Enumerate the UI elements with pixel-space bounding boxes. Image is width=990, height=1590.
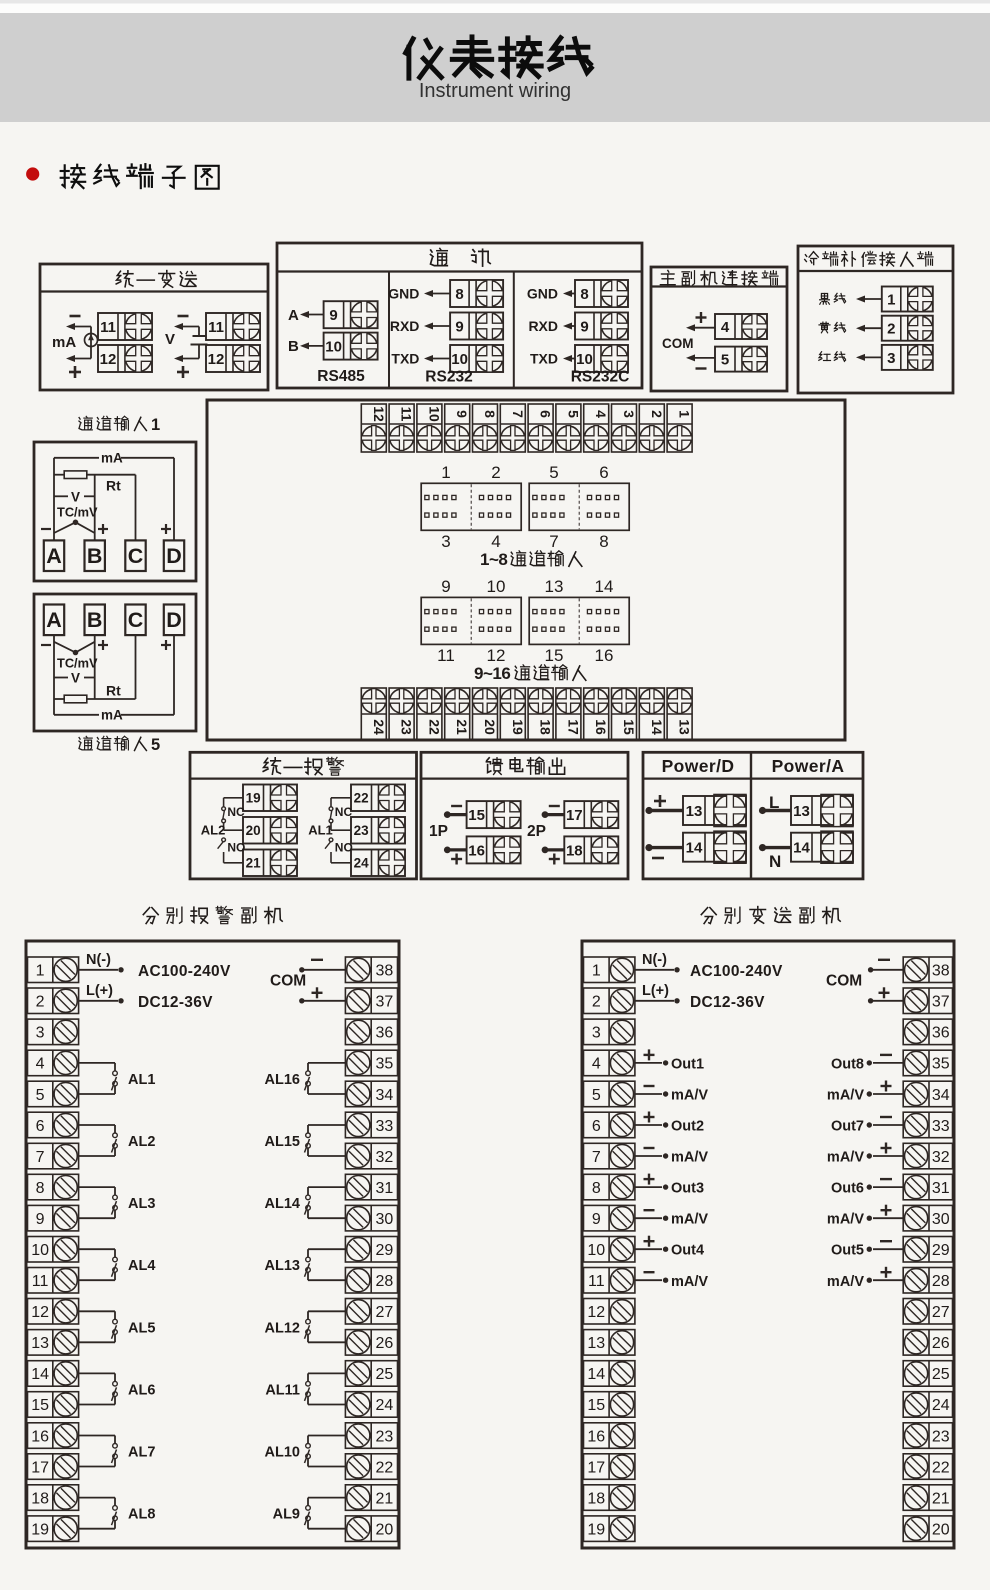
svg-text:12: 12 [208, 351, 225, 368]
svg-text:10: 10 [325, 339, 342, 356]
svg-text:3: 3 [887, 350, 895, 367]
svg-text:Out6: Out6 [831, 1181, 864, 1197]
svg-text:10: 10 [426, 406, 442, 422]
svg-text:AL2: AL2 [201, 823, 226, 838]
svg-text:A: A [288, 307, 299, 324]
svg-text:GND: GND [527, 286, 558, 302]
svg-text:3: 3 [441, 532, 450, 551]
svg-text:AL5: AL5 [128, 1320, 155, 1336]
svg-text:28: 28 [932, 1273, 950, 1290]
svg-text:17: 17 [31, 1459, 49, 1476]
svg-text:Rt: Rt [106, 478, 121, 494]
svg-text:RS485: RS485 [317, 368, 365, 385]
svg-text:33: 33 [376, 1118, 394, 1135]
svg-text:mA/V: mA/V [827, 1212, 864, 1228]
svg-text:AL14: AL14 [265, 1196, 300, 1212]
svg-text:17: 17 [566, 807, 583, 824]
svg-text:mA/V: mA/V [671, 1274, 708, 1290]
svg-text:29: 29 [932, 1242, 950, 1259]
svg-text:21: 21 [932, 1490, 950, 1507]
svg-text:D: D [166, 544, 182, 568]
svg-text:25: 25 [932, 1366, 950, 1383]
svg-text:5: 5 [565, 410, 581, 418]
svg-text:B: B [288, 338, 299, 355]
svg-text:29: 29 [376, 1242, 394, 1259]
svg-text:10: 10 [451, 351, 468, 368]
svg-text:TXD: TXD [530, 351, 558, 367]
svg-text:2P: 2P [527, 823, 546, 840]
svg-text:4: 4 [36, 1056, 45, 1073]
svg-text:5: 5 [721, 352, 729, 369]
svg-text:NC: NC [227, 805, 245, 819]
svg-text:8: 8 [482, 410, 498, 418]
svg-text:mA/V: mA/V [671, 1088, 708, 1104]
svg-text:35: 35 [932, 1056, 950, 1073]
svg-text:34: 34 [932, 1087, 950, 1104]
svg-text:AL6: AL6 [128, 1382, 155, 1398]
svg-text:11: 11 [100, 319, 116, 336]
svg-text:10: 10 [587, 1242, 605, 1259]
svg-text:14: 14 [595, 577, 614, 596]
svg-text:B: B [87, 544, 103, 568]
svg-text:D: D [166, 608, 182, 632]
svg-text:16: 16 [468, 842, 485, 859]
svg-text:9: 9 [329, 307, 337, 324]
svg-text:15: 15 [621, 719, 637, 735]
svg-text:Power/A: Power/A [772, 756, 845, 776]
svg-text:4: 4 [593, 410, 609, 418]
svg-text:mA: mA [52, 334, 76, 351]
svg-text:32: 32 [932, 1149, 950, 1166]
svg-text:Out3: Out3 [671, 1181, 704, 1197]
svg-text:Out8: Out8 [831, 1056, 864, 1072]
svg-text:COM: COM [270, 973, 306, 990]
svg-text:20: 20 [246, 823, 261, 838]
svg-text:18: 18 [538, 719, 554, 735]
svg-text:14: 14 [649, 719, 665, 735]
svg-text:23: 23 [399, 719, 415, 735]
svg-text:1: 1 [677, 410, 693, 418]
svg-text:AL13: AL13 [265, 1258, 300, 1274]
svg-text:25: 25 [376, 1366, 394, 1383]
svg-text:22: 22 [376, 1459, 394, 1476]
svg-text:18: 18 [31, 1490, 49, 1507]
svg-text:Out5: Out5 [831, 1243, 864, 1259]
svg-text:23: 23 [932, 1428, 950, 1445]
svg-text:28: 28 [376, 1273, 394, 1290]
svg-text:AL4: AL4 [128, 1258, 155, 1274]
svg-text:26: 26 [932, 1335, 950, 1352]
svg-text:7: 7 [549, 532, 558, 551]
svg-text:NO: NO [335, 841, 353, 855]
svg-text:L(+): L(+) [642, 983, 669, 999]
svg-text:15: 15 [587, 1397, 605, 1414]
svg-text:3: 3 [621, 410, 637, 418]
svg-text:A: A [46, 608, 62, 632]
svg-text:17: 17 [565, 719, 581, 735]
svg-text:mA/V: mA/V [827, 1150, 864, 1166]
svg-text:TXD: TXD [391, 351, 419, 367]
svg-text:14: 14 [31, 1366, 49, 1383]
svg-text:30: 30 [932, 1211, 950, 1228]
svg-text:16: 16 [31, 1428, 49, 1445]
svg-text:L(+): L(+) [86, 983, 113, 999]
svg-text:24: 24 [354, 856, 370, 871]
svg-text:13: 13 [545, 577, 564, 596]
svg-text:27: 27 [932, 1304, 950, 1321]
svg-text:10: 10 [576, 351, 593, 368]
svg-text:5: 5 [36, 1087, 45, 1104]
svg-text:RS232C: RS232C [571, 369, 630, 386]
svg-text:15: 15 [468, 807, 485, 824]
svg-text:11: 11 [208, 319, 224, 336]
svg-text:2: 2 [649, 410, 665, 418]
svg-text:L: L [769, 793, 779, 812]
svg-text:8: 8 [455, 286, 463, 303]
svg-text:RXD: RXD [528, 318, 558, 334]
svg-text:mA/V: mA/V [827, 1088, 864, 1104]
svg-text:16: 16 [593, 719, 609, 735]
svg-text:5: 5 [592, 1087, 601, 1104]
svg-text:10: 10 [487, 577, 506, 596]
svg-text:2: 2 [491, 463, 500, 482]
svg-text:36: 36 [932, 1025, 950, 1042]
svg-text:19: 19 [246, 791, 261, 806]
svg-text:AC100-240V: AC100-240V [690, 963, 783, 980]
svg-text:11: 11 [32, 1273, 49, 1290]
svg-text:Out2: Out2 [671, 1119, 704, 1135]
svg-text:RS232: RS232 [425, 369, 472, 386]
svg-text:Out7: Out7 [831, 1119, 864, 1135]
svg-text:14: 14 [793, 840, 810, 857]
svg-text:3: 3 [36, 1025, 45, 1042]
svg-text:AL3: AL3 [128, 1196, 155, 1212]
svg-text:16: 16 [587, 1428, 605, 1445]
svg-text:9: 9 [454, 410, 470, 418]
svg-text:N(-): N(-) [642, 952, 667, 968]
svg-text:26: 26 [376, 1335, 394, 1352]
svg-text:21: 21 [376, 1490, 394, 1507]
svg-text:13: 13 [686, 803, 703, 820]
svg-text:9: 9 [441, 577, 450, 596]
svg-text:6: 6 [36, 1118, 45, 1135]
svg-text:B: B [87, 608, 103, 632]
svg-text:31: 31 [376, 1180, 394, 1197]
svg-text:TC/mV: TC/mV [57, 505, 98, 520]
svg-text:AC100-240V: AC100-240V [138, 963, 231, 980]
svg-text:37: 37 [932, 994, 950, 1011]
svg-text:20: 20 [482, 719, 498, 735]
svg-text:mA/V: mA/V [827, 1274, 864, 1290]
svg-text:1P: 1P [429, 823, 448, 840]
svg-text:1: 1 [887, 291, 895, 308]
svg-text:19: 19 [31, 1522, 49, 1539]
svg-text:DC12-36V: DC12-36V [690, 994, 765, 1011]
svg-text:22: 22 [426, 719, 442, 735]
svg-text:mA/V: mA/V [671, 1150, 708, 1166]
svg-text:N(-): N(-) [86, 952, 111, 968]
svg-text:V: V [71, 671, 80, 686]
svg-text:10: 10 [31, 1242, 49, 1259]
svg-text:19: 19 [587, 1522, 605, 1539]
svg-text:38: 38 [932, 963, 950, 980]
svg-text:8: 8 [599, 532, 608, 551]
svg-text:A: A [46, 544, 62, 568]
svg-text:RXD: RXD [390, 318, 420, 334]
svg-text:1: 1 [441, 463, 450, 482]
svg-text:Rt: Rt [106, 683, 121, 699]
svg-text:mA: mA [101, 451, 123, 466]
svg-text:C: C [128, 608, 144, 632]
svg-text:V: V [165, 331, 175, 348]
svg-text:DC12-36V: DC12-36V [138, 994, 213, 1011]
svg-text:20: 20 [932, 1522, 950, 1539]
svg-text:7: 7 [36, 1149, 45, 1166]
svg-text:27: 27 [376, 1304, 394, 1321]
svg-text:12: 12 [371, 406, 387, 422]
svg-text:15: 15 [31, 1397, 49, 1414]
svg-text:NC: NC [335, 805, 353, 819]
svg-text:4: 4 [592, 1056, 601, 1073]
svg-text:4: 4 [491, 532, 500, 551]
svg-text:mA/V: mA/V [671, 1212, 708, 1228]
svg-text:30: 30 [376, 1211, 394, 1228]
svg-text:32: 32 [376, 1149, 394, 1166]
svg-text:36: 36 [376, 1025, 394, 1042]
svg-text:13: 13 [793, 803, 810, 820]
svg-text:19: 19 [510, 719, 526, 735]
svg-text:22: 22 [354, 791, 369, 806]
svg-text:35: 35 [376, 1056, 394, 1073]
svg-text:18: 18 [566, 842, 583, 859]
svg-text:11: 11 [437, 646, 455, 665]
svg-text:Out1: Out1 [671, 1056, 704, 1072]
svg-text:AL1: AL1 [308, 823, 333, 838]
svg-text:6: 6 [599, 463, 608, 482]
svg-text:38: 38 [376, 963, 394, 980]
svg-text:V: V [71, 490, 80, 505]
svg-text:8: 8 [592, 1180, 601, 1197]
svg-text:2: 2 [887, 321, 895, 338]
svg-text:NO: NO [227, 841, 245, 855]
svg-text:24: 24 [932, 1397, 950, 1414]
svg-text:Power/D: Power/D [662, 756, 735, 776]
svg-text:13: 13 [587, 1335, 605, 1352]
svg-text:33: 33 [932, 1118, 950, 1135]
svg-text:31: 31 [932, 1180, 950, 1197]
svg-text:18: 18 [587, 1490, 605, 1507]
svg-text:AL7: AL7 [128, 1445, 155, 1461]
svg-text:AL11: AL11 [265, 1382, 300, 1398]
svg-text:37: 37 [376, 994, 394, 1011]
svg-text:12: 12 [31, 1304, 49, 1321]
svg-text:24: 24 [371, 719, 387, 735]
svg-text:20: 20 [376, 1522, 394, 1539]
svg-text:7: 7 [592, 1149, 601, 1166]
svg-text:AL2: AL2 [128, 1134, 155, 1150]
svg-text:9: 9 [36, 1211, 45, 1228]
svg-text:AL9: AL9 [273, 1507, 300, 1523]
svg-text:AL10: AL10 [265, 1445, 300, 1461]
svg-text:23: 23 [376, 1428, 394, 1445]
svg-text:1~8: 1~8 [480, 550, 507, 569]
svg-text:2: 2 [36, 994, 45, 1011]
svg-text:TC/mV: TC/mV [57, 656, 98, 671]
svg-text:COM: COM [826, 973, 862, 990]
svg-text:8: 8 [36, 1180, 45, 1197]
svg-text:1: 1 [36, 963, 45, 980]
svg-text:13: 13 [677, 719, 693, 735]
svg-text:C: C [128, 544, 144, 568]
svg-text:9: 9 [580, 318, 588, 335]
svg-text:6: 6 [592, 1118, 601, 1135]
svg-text:AL1: AL1 [128, 1072, 155, 1088]
svg-text:Instrument wiring: Instrument wiring [419, 80, 571, 102]
svg-text:23: 23 [354, 823, 370, 838]
svg-text:11: 11 [399, 407, 415, 422]
svg-text:COM: COM [662, 336, 694, 351]
svg-text:12: 12 [587, 1304, 605, 1321]
svg-text:9~16: 9~16 [474, 664, 510, 683]
svg-text:1: 1 [151, 416, 160, 434]
svg-text:22: 22 [932, 1459, 950, 1476]
svg-text:3: 3 [592, 1025, 601, 1042]
svg-text:N: N [769, 852, 781, 871]
svg-text:AL16: AL16 [265, 1072, 300, 1088]
svg-text:34: 34 [376, 1087, 394, 1104]
svg-text:7: 7 [510, 410, 526, 418]
svg-text:21: 21 [246, 856, 262, 871]
svg-text:5: 5 [151, 736, 160, 754]
svg-text:5: 5 [549, 463, 558, 482]
svg-text:mA: mA [101, 708, 123, 723]
svg-text:1: 1 [592, 963, 601, 980]
svg-text:Out4: Out4 [671, 1243, 704, 1259]
svg-text:2: 2 [592, 994, 601, 1011]
svg-text:GND: GND [388, 286, 419, 302]
svg-text:13: 13 [31, 1335, 49, 1352]
svg-text:AL8: AL8 [128, 1507, 155, 1523]
svg-text:14: 14 [587, 1366, 605, 1383]
svg-text:9: 9 [592, 1211, 601, 1228]
svg-text:AL12: AL12 [265, 1320, 300, 1336]
svg-text:15: 15 [545, 646, 564, 665]
svg-text:16: 16 [595, 646, 614, 665]
svg-text:14: 14 [686, 840, 703, 857]
svg-text:12: 12 [100, 351, 117, 368]
svg-text:AL15: AL15 [265, 1134, 300, 1150]
svg-text:9: 9 [455, 318, 463, 335]
svg-text:17: 17 [587, 1459, 605, 1476]
svg-text:24: 24 [376, 1397, 394, 1414]
svg-text:21: 21 [454, 719, 470, 735]
svg-text:8: 8 [580, 286, 588, 303]
svg-text:6: 6 [538, 410, 554, 418]
svg-text:4: 4 [721, 319, 730, 336]
svg-text:11: 11 [588, 1273, 605, 1290]
svg-text:12: 12 [487, 646, 506, 665]
